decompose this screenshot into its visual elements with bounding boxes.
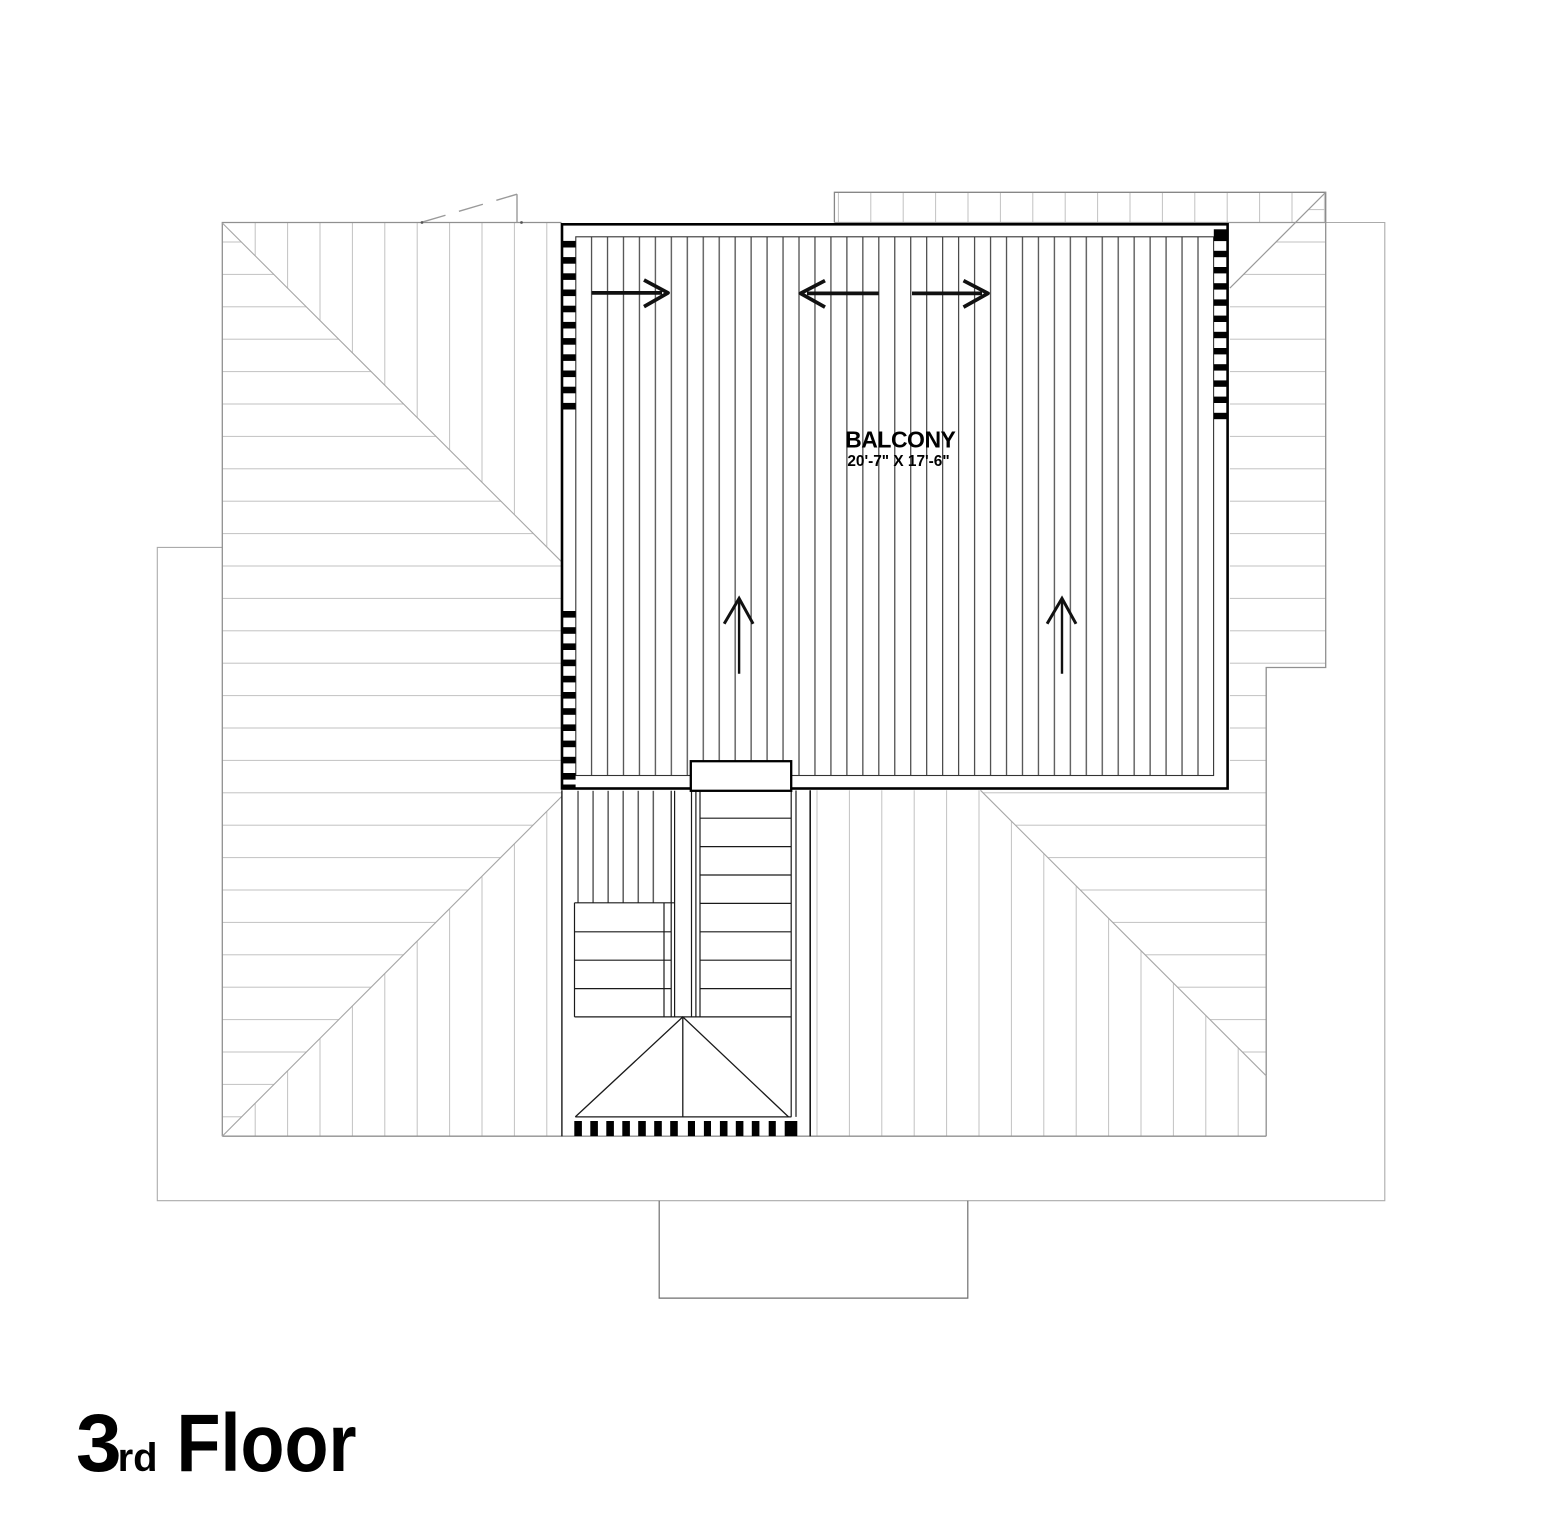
svg-text:20'-7" X 17'-6": 20'-7" X 17'-6" — [847, 453, 949, 470]
svg-text:Floor: Floor — [177, 1398, 357, 1489]
svg-text:3rd: 3rd — [76, 1398, 158, 1489]
svg-text:BALCONY: BALCONY — [845, 426, 955, 452]
